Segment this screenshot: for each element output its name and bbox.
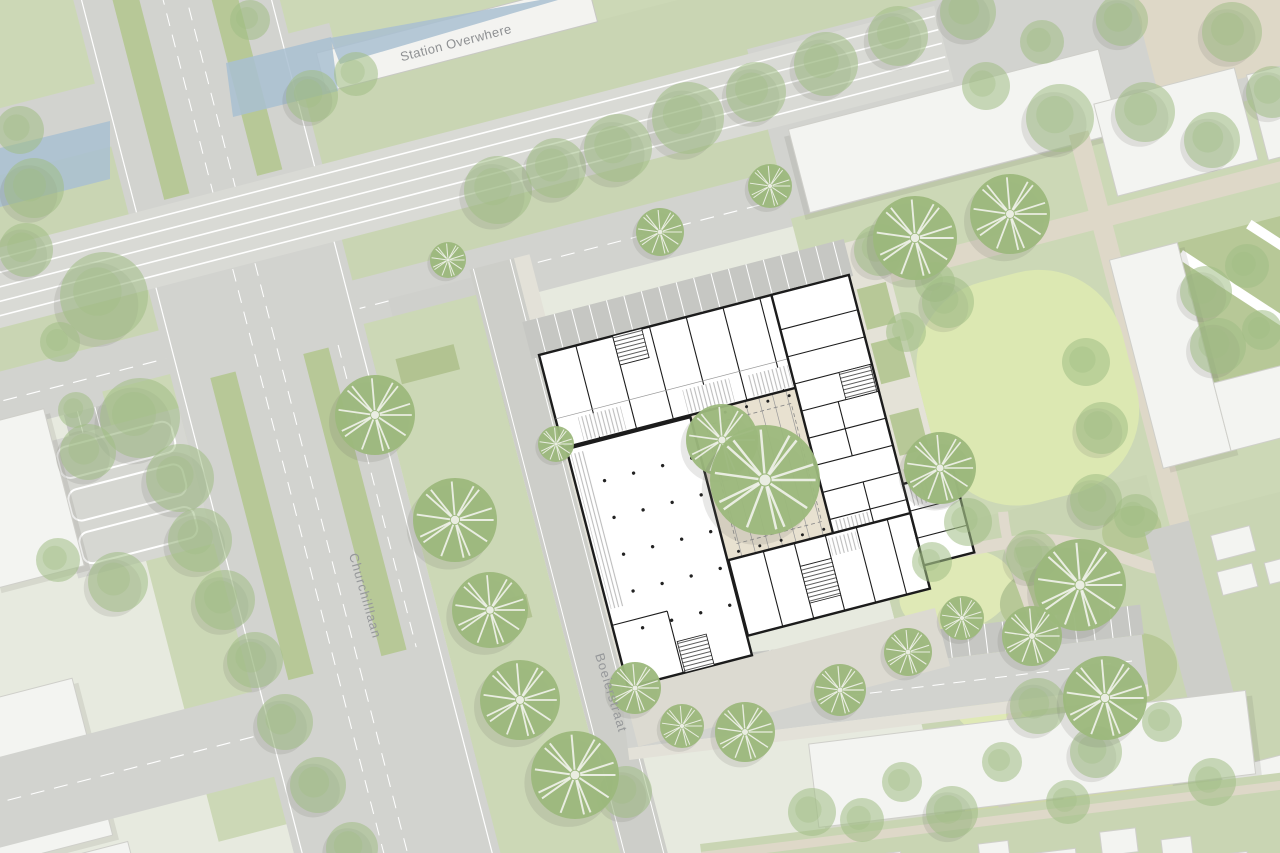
masterplan-drawing: Station Overwhere Churchilllaan Boeierst… xyxy=(0,0,1280,853)
siteplan-canvas: Station Overwhere Churchilllaan Boeierst… xyxy=(0,0,1280,853)
